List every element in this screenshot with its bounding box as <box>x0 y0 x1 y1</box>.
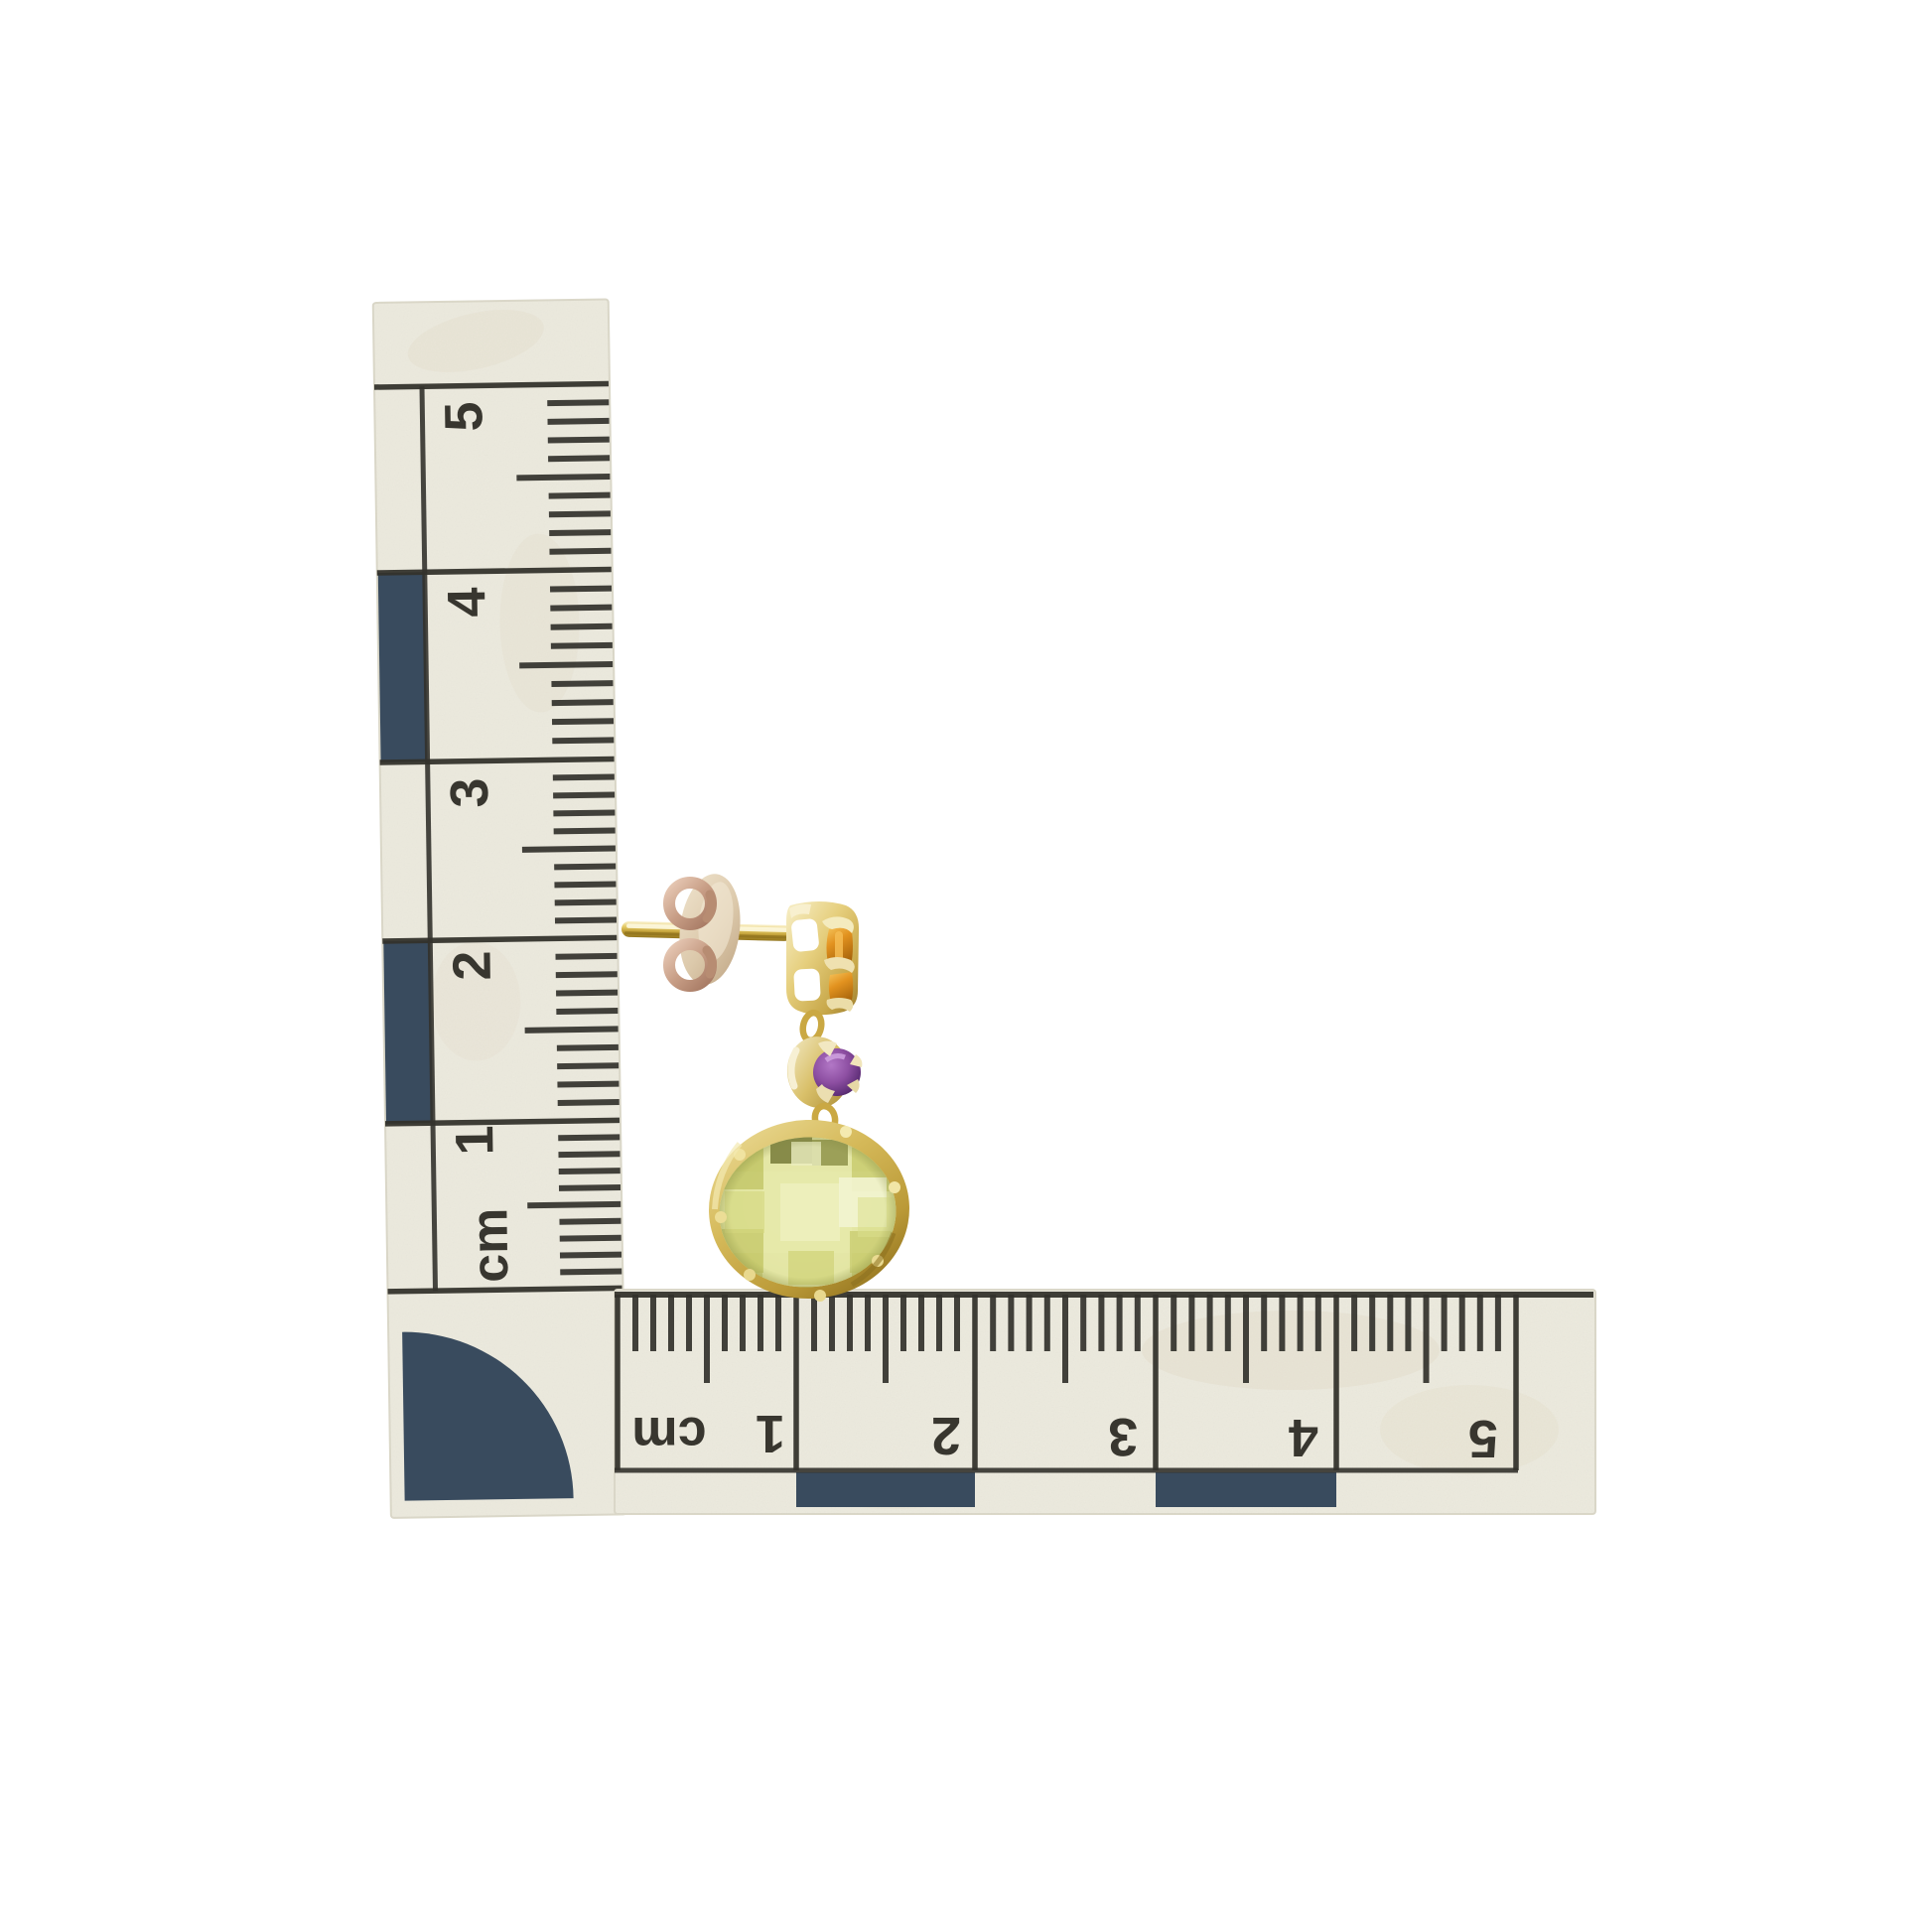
svg-text:3: 3 <box>1108 1407 1138 1466</box>
svg-text:1: 1 <box>445 1125 504 1156</box>
svg-text:2: 2 <box>442 950 501 981</box>
svg-text:cm: cm <box>461 1207 519 1283</box>
svg-text:2: 2 <box>931 1406 961 1465</box>
svg-text:5: 5 <box>1468 1409 1498 1468</box>
svg-text:4: 4 <box>437 587 496 618</box>
svg-text:5: 5 <box>434 401 493 432</box>
svg-text:3: 3 <box>440 777 499 808</box>
svg-text:cm: cm <box>631 1406 706 1463</box>
svg-text:1: 1 <box>756 1404 785 1463</box>
svg-text:4: 4 <box>1289 1408 1318 1467</box>
